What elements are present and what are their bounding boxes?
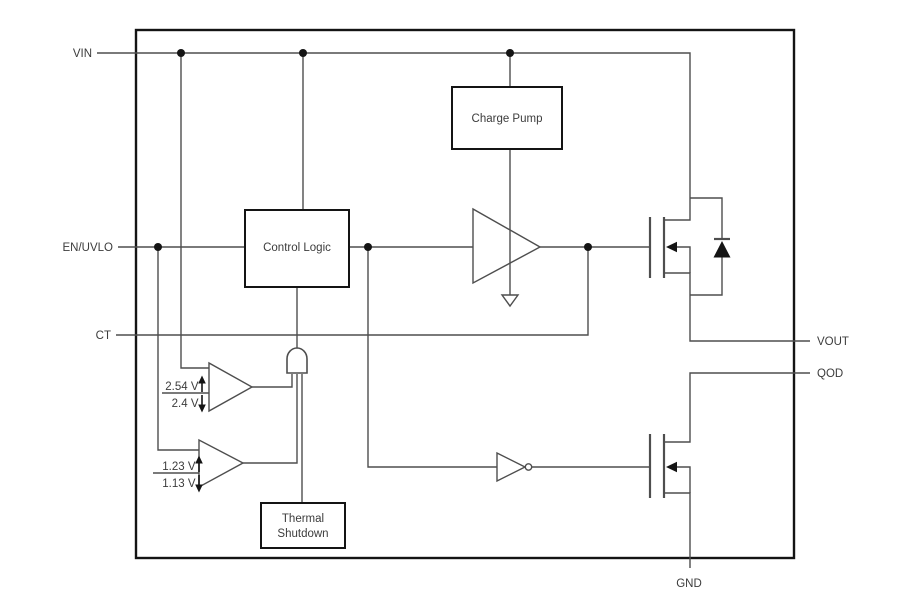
- en-to-comparator-wire: [158, 247, 199, 450]
- junction-dot: [154, 243, 162, 251]
- ground-symbol: [502, 295, 518, 306]
- pass-fet-body-wire: [676, 247, 690, 273]
- qod-fet: [650, 434, 677, 498]
- en-comparator: [199, 440, 243, 487]
- uvlo-hysteresis-arrows: [198, 376, 206, 413]
- body-diode-bottom-wire: [690, 257, 722, 295]
- thermal-shutdown-block: [261, 503, 345, 548]
- thermal-shutdown-label-line2: Shutdown: [277, 528, 328, 540]
- and-gate: [287, 348, 307, 373]
- ct-pin-wire: [116, 248, 588, 335]
- pin-label-vin: VIN: [73, 48, 92, 60]
- qod-pin-wire: [665, 373, 810, 442]
- en-falling-threshold-label: 1.13 V: [162, 478, 196, 490]
- inverter-bubble-icon: [525, 464, 531, 470]
- junction-dot: [506, 49, 514, 57]
- vin-rail-wire: [97, 53, 690, 220]
- junction-dot: [584, 243, 592, 251]
- junction-dot: [299, 49, 307, 57]
- body-diode: [714, 239, 731, 258]
- body-diode-triangle-icon: [714, 241, 731, 258]
- diagram-canvas: VIN EN/UVLO CT VOUT QOD GND Charge Pump …: [0, 0, 900, 597]
- charge-pump-label: Charge Pump: [472, 113, 543, 125]
- uvlo-rising-threshold-label: 2.54 V: [165, 381, 199, 393]
- falling-arrow-icon: [198, 405, 206, 413]
- qod-fet-body-wire: [676, 467, 690, 493]
- junction-dot: [177, 49, 185, 57]
- junction-dot: [364, 243, 372, 251]
- gnd-pin-wire: [665, 493, 690, 568]
- uvlo-falling-threshold-label: 2.4 V: [172, 398, 199, 410]
- falling-arrow-icon: [195, 485, 203, 493]
- pin-label-en-uvlo: EN/UVLO: [63, 242, 114, 254]
- pin-label-gnd: GND: [676, 578, 702, 590]
- vin-to-uvlo-comparator-wire: [181, 53, 209, 368]
- control-logic-label: Control Logic: [263, 242, 331, 254]
- vin-uvlo-comparator: [209, 363, 252, 411]
- uvlo-comparator-output-wire: [252, 374, 292, 387]
- pin-label-qod: QOD: [817, 368, 843, 380]
- vout-pin-wire: [665, 273, 810, 341]
- en-rising-threshold-label: 1.23 V: [162, 461, 196, 473]
- pin-label-ct: CT: [96, 330, 111, 342]
- pass-fet-arrow-icon: [666, 242, 677, 252]
- qod-inverter: [497, 453, 525, 481]
- thermal-shutdown-label-line1: Thermal: [282, 513, 324, 525]
- block-diagram: VIN EN/UVLO CT VOUT QOD GND Charge Pump …: [0, 0, 900, 597]
- body-diode-top-wire: [690, 198, 722, 240]
- gate-driver-buffer: [473, 209, 540, 283]
- pass-fet: [650, 217, 677, 278]
- qod-fet-arrow-icon: [666, 462, 677, 472]
- rising-arrow-icon: [198, 376, 206, 384]
- pin-label-vout: VOUT: [817, 336, 849, 348]
